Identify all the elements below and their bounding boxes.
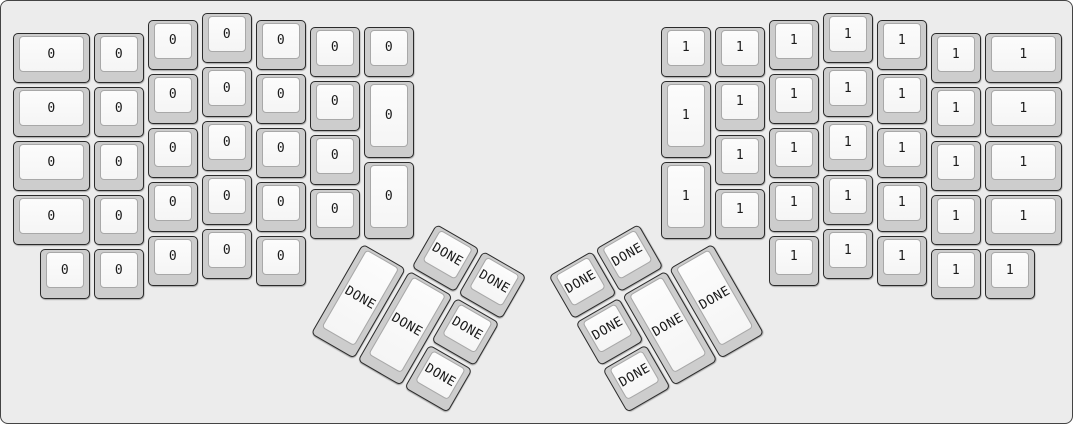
keycap-label: 1 [1019,209,1027,224]
keycap-label: 0 [115,155,123,170]
keycap-label: 1 [790,87,798,102]
key-0[interactable]: 0 [94,249,144,299]
keycap-label: 0 [223,243,231,258]
key-0[interactable]: 0 [40,249,90,299]
keycap-label: 1 [952,155,960,170]
key-1[interactable]: 1 [985,87,1062,137]
keycap-label: 0 [61,263,69,278]
keycap-label: 0 [277,195,285,210]
key-0[interactable]: 0 [202,13,252,63]
keycap-top-surface: 0 [316,30,354,66]
keycap-label: 0 [115,101,123,116]
keycap-top-surface: 0 [316,84,354,120]
key-1[interactable]: 1 [661,162,711,239]
keycap-top-surface: 1 [829,232,867,268]
keycap-label: 1 [898,141,906,156]
keycap-top-surface: 1 [937,252,975,288]
keycap-label: DONE [449,313,485,343]
keycap-top-surface: 1 [775,131,813,167]
key-1[interactable]: 1 [931,195,981,245]
key-1[interactable]: 1 [877,20,927,70]
keycap-top-surface: 0 [208,16,246,52]
key-1[interactable]: 1 [823,229,873,279]
keycap-label: DONE [389,309,425,339]
keycap-top-surface: 0 [100,90,138,126]
keycap-top-surface: 1 [937,36,975,72]
key-0[interactable]: 0 [148,182,198,232]
keycap-label: DONE [342,282,378,312]
keycap-label: 1 [682,40,690,55]
keycap-top-surface: 1 [991,198,1056,234]
keycap-top-surface: DONE [555,256,606,306]
keycap-label: 0 [385,108,393,123]
keycap-label: 0 [47,209,55,224]
key-0[interactable]: 0 [310,189,360,239]
keycap-top-surface: 1 [775,77,813,113]
key-1[interactable]: 1 [661,27,711,77]
key-1[interactable]: 1 [823,175,873,225]
keycap-top-surface: 0 [370,84,408,147]
keycap-label: 1 [1019,101,1027,116]
keycap-label: 1 [844,189,852,204]
keycap-label: 1 [898,249,906,264]
keycap-label: 0 [223,27,231,42]
key-0[interactable]: 0 [13,33,90,83]
keycap-top-surface: DONE [602,229,653,279]
keycap-label: 0 [331,148,339,163]
keycap-top-surface: 1 [991,144,1056,180]
keycap-label: DONE [429,239,465,269]
key-0[interactable]: 0 [310,135,360,185]
keycap-top-surface: 0 [262,77,300,113]
key-0[interactable]: 0 [202,229,252,279]
keycap-top-surface: 0 [208,178,246,214]
key-1[interactable]: 1 [877,182,927,232]
keycap-label: 0 [169,249,177,264]
key-1[interactable]: 1 [769,20,819,70]
keycap-top-surface: 0 [100,252,138,288]
keycap-label: 1 [682,108,690,123]
keycap-label: 0 [169,33,177,48]
keycap-top-surface: 0 [154,185,192,221]
keycap-label: 1 [844,243,852,258]
keycap-top-surface: 1 [937,144,975,180]
keycap-top-surface: 1 [829,124,867,160]
key-1[interactable]: 1 [769,74,819,124]
key-0[interactable]: 0 [256,236,306,286]
key-1[interactable]: 1 [931,141,981,191]
key-0[interactable]: 0 [94,195,144,245]
keycap-label: 1 [898,33,906,48]
keycap-top-surface: 0 [154,77,192,113]
keycap-top-surface: DONE [609,350,660,400]
keycap-top-surface: 0 [46,252,84,288]
key-1[interactable]: 1 [715,81,765,131]
keycap-top-surface: 1 [883,23,921,59]
keycap-label: DONE [589,313,625,343]
keycap-label: DONE [562,266,598,296]
keycap-top-surface: 0 [208,70,246,106]
key-1[interactable]: 1 [661,81,711,158]
keycap-top-surface: 1 [721,84,759,120]
keycap-top-surface: 0 [19,90,84,126]
key-1[interactable]: 1 [877,236,927,286]
key-0[interactable]: 0 [256,128,306,178]
key-1[interactable]: 1 [769,128,819,178]
keycap-label: 0 [277,87,285,102]
keycap-top-surface: 1 [991,36,1056,72]
keycap-top-surface: 0 [154,131,192,167]
key-1[interactable]: 1 [823,67,873,117]
key-0[interactable]: 0 [13,87,90,137]
keyboard-canvas: 0000000000000000000000000000000011111111… [0,0,1073,424]
keycap-top-surface: 0 [100,36,138,72]
keycap-label: 1 [952,263,960,278]
keycap-top-surface: 1 [667,84,705,147]
key-1[interactable]: 1 [823,121,873,171]
keycap-top-surface: 0 [370,165,408,228]
key-0[interactable]: 0 [94,141,144,191]
key-0[interactable]: 0 [364,27,414,77]
key-0[interactable]: 0 [310,27,360,77]
key-0[interactable]: 0 [148,20,198,70]
key-0[interactable]: 0 [148,74,198,124]
keycap-top-surface: 0 [100,144,138,180]
key-0[interactable]: 0 [13,195,90,245]
keycap-label: 1 [790,33,798,48]
key-0[interactable]: 0 [148,128,198,178]
keycap-top-surface: 1 [937,90,975,126]
keycap-label: 1 [844,27,852,42]
key-1[interactable]: 1 [715,189,765,239]
keycap-label: DONE [696,282,732,312]
keycap-top-surface: 0 [19,198,84,234]
keycap-label: 0 [169,141,177,156]
keycap-top-surface: 1 [667,165,705,228]
keycap-label: 1 [736,40,744,55]
keycap-label: 1 [844,135,852,150]
keycap-top-surface: 0 [262,131,300,167]
keycap-label: 0 [169,195,177,210]
keycap-label: 0 [223,81,231,96]
keycap-label: 0 [115,47,123,62]
key-0[interactable]: 0 [13,141,90,191]
key-1[interactable]: 1 [877,128,927,178]
key-0[interactable]: 0 [256,182,306,232]
key-0[interactable]: 0 [94,33,144,83]
keycap-top-surface: 0 [262,23,300,59]
keycap-label: 0 [385,40,393,55]
key-1[interactable]: 1 [715,135,765,185]
keycap-label: 0 [277,141,285,156]
keycap-top-surface: 1 [667,30,705,66]
keycap-top-surface: 1 [829,16,867,52]
keycap-top-surface: 1 [937,198,975,234]
keycap-label: 0 [47,155,55,170]
keycap-label: 1 [736,94,744,109]
keycap-top-surface: 1 [775,185,813,221]
key-1[interactable]: 1 [823,13,873,63]
keycap-label: 1 [952,101,960,116]
keycap-label: DONE [609,239,645,269]
keycap-label: DONE [616,360,652,390]
keycap-label: 1 [790,141,798,156]
keycap-label: 1 [1006,263,1014,278]
keycap-label: 0 [385,189,393,204]
keycap-label: 0 [115,263,123,278]
keycap-label: 1 [790,249,798,264]
keycap-label: 1 [736,148,744,163]
key-1[interactable]: 1 [769,182,819,232]
key-1[interactable]: 1 [985,249,1035,299]
keycap-top-surface: DONE [469,256,520,306]
keycap-label: 1 [952,47,960,62]
keycap-top-surface: 0 [19,144,84,180]
keycap-top-surface: 1 [721,192,759,228]
keycap-label: DONE [422,360,458,390]
keycap-label: 0 [169,87,177,102]
key-1[interactable]: 1 [985,195,1062,245]
keycap-top-surface: 0 [262,239,300,275]
keycap-top-surface: 1 [829,178,867,214]
keycap-label: 0 [47,47,55,62]
key-1[interactable]: 1 [985,141,1062,191]
keycap-top-surface: 0 [262,185,300,221]
keycap-label: 1 [790,195,798,210]
key-1[interactable]: 1 [877,74,927,124]
keycap-label: 0 [223,189,231,204]
keycap-label: 1 [682,189,690,204]
keycap-top-surface: 1 [775,23,813,59]
keycap-top-surface: DONE [422,229,473,279]
keycap-label: 1 [1019,155,1027,170]
keycap-label: 0 [115,209,123,224]
keycap-top-surface: 1 [991,252,1029,288]
keycap-label: 1 [898,195,906,210]
keycap-top-surface: 1 [991,90,1056,126]
keycap-label: 0 [277,33,285,48]
key-0[interactable]: 0 [202,121,252,171]
keycap-top-surface: 1 [721,138,759,174]
keycap-top-surface: 1 [883,131,921,167]
key-0[interactable]: 0 [256,74,306,124]
key-0[interactable]: 0 [202,67,252,117]
key-0[interactable]: 0 [202,175,252,225]
keycap-top-surface: 0 [154,239,192,275]
key-1[interactable]: 1 [931,249,981,299]
key-0[interactable]: 0 [364,81,414,158]
keycap-top-surface: 1 [721,30,759,66]
key-1[interactable]: 1 [931,33,981,83]
keycap-top-surface: 1 [883,77,921,113]
keycap-label: DONE [650,309,686,339]
keycap-label: 0 [331,202,339,217]
keycap-label: 0 [47,101,55,116]
key-1[interactable]: 1 [931,87,981,137]
keycap-label: 1 [952,209,960,224]
keycap-top-surface: 0 [100,198,138,234]
keycap-label: 0 [277,249,285,264]
keycap-label: 1 [898,87,906,102]
keycap-top-surface: DONE [582,303,633,353]
key-0[interactable]: 0 [148,236,198,286]
keycap-top-surface: 0 [154,23,192,59]
keycap-label: 1 [736,202,744,217]
keycap-top-surface: 1 [775,239,813,275]
keycap-top-surface: 0 [208,124,246,160]
keycap-label: DONE [476,266,512,296]
keycap-top-surface: 0 [208,232,246,268]
key-0[interactable]: 0 [310,81,360,131]
keycap-top-surface: 1 [883,239,921,275]
keycap-top-surface: 0 [316,138,354,174]
keycap-top-surface: 0 [370,30,408,66]
keycap-top-surface: 1 [883,185,921,221]
keycap-label: 0 [331,94,339,109]
key-1[interactable]: 1 [769,236,819,286]
keycap-label: 0 [223,135,231,150]
keycap-top-surface: 0 [19,36,84,72]
key-0[interactable]: 0 [256,20,306,70]
key-1[interactable]: 1 [715,27,765,77]
key-1[interactable]: 1 [985,33,1062,83]
keycap-label: 1 [844,81,852,96]
key-0[interactable]: 0 [94,87,144,137]
keycap-top-surface: 1 [829,70,867,106]
keycap-label: 0 [331,40,339,55]
keycap-label: 1 [1019,47,1027,62]
key-0[interactable]: 0 [364,162,414,239]
keycap-top-surface: 0 [316,192,354,228]
